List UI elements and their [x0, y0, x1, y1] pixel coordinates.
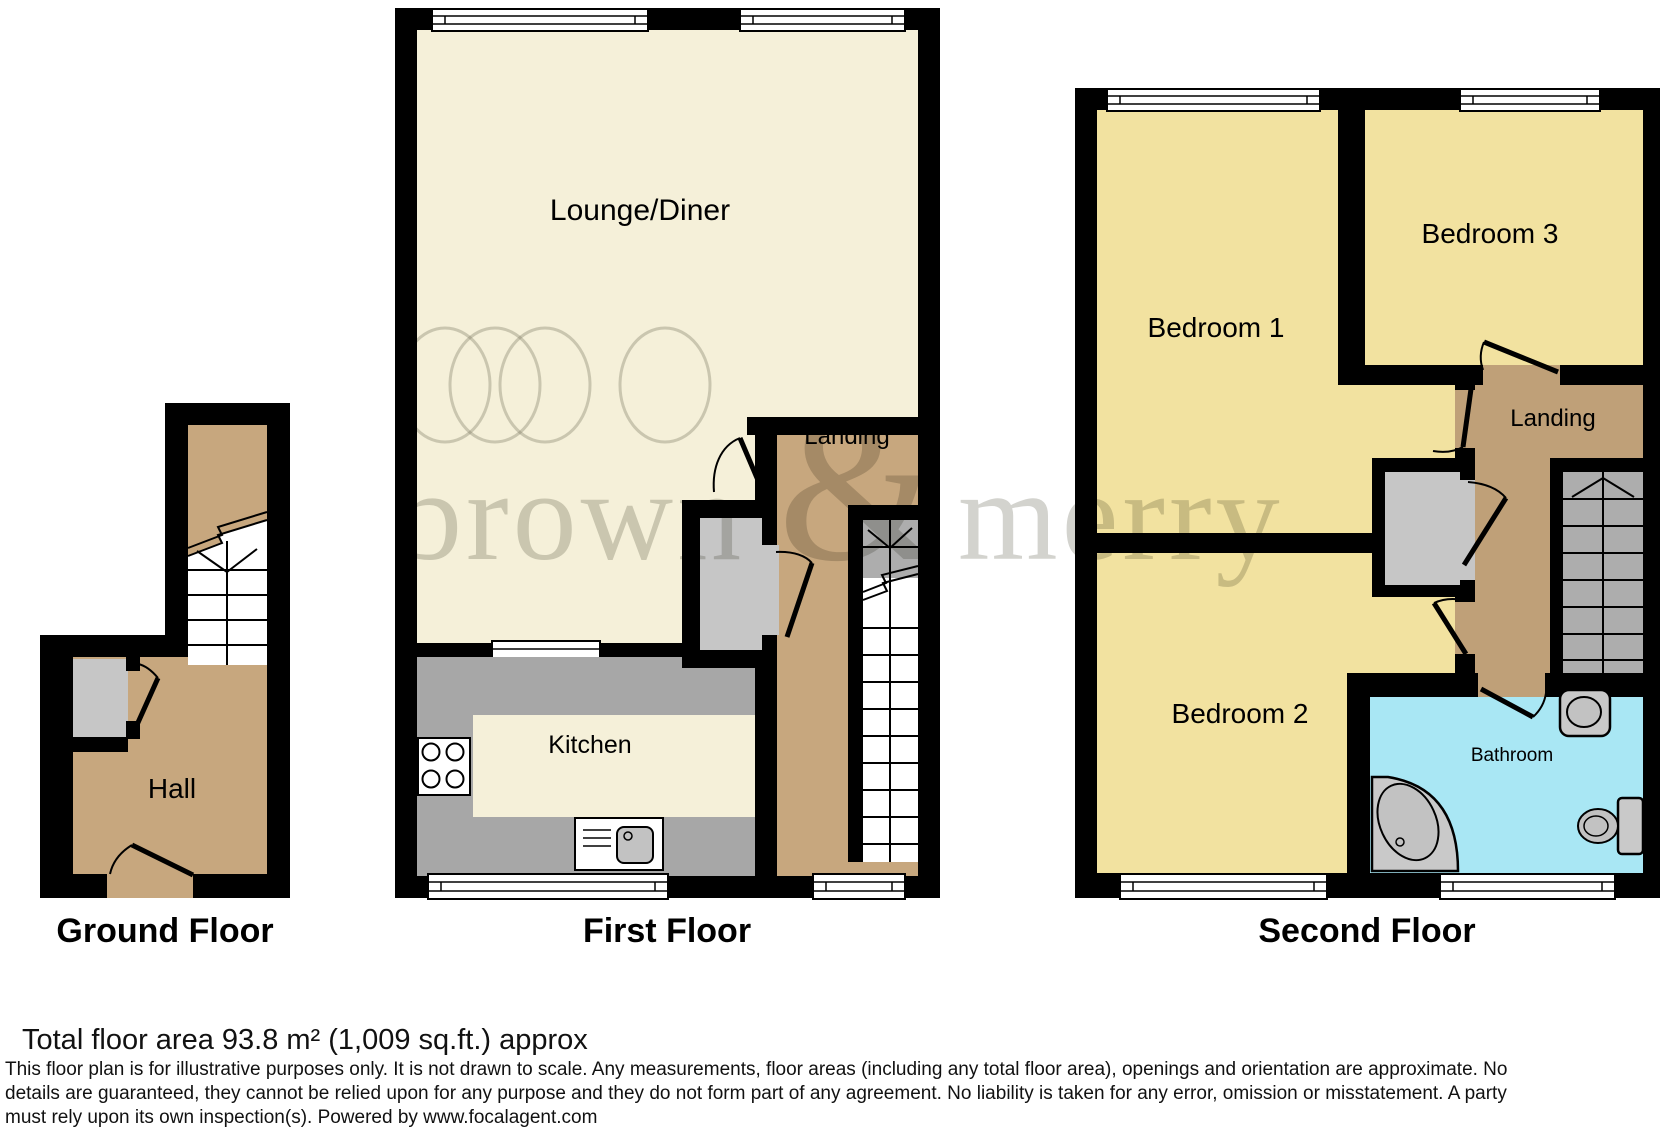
- first-floor-plan: Lounge/Diner Landing Kitchen: [395, 8, 940, 899]
- hob-icon: [418, 738, 470, 795]
- room-label-lounge-diner: Lounge/Diner: [550, 194, 730, 227]
- room-label-landing: Landing: [1510, 405, 1595, 432]
- cased-opening-icon: [492, 641, 600, 658]
- window-icon: [432, 9, 648, 31]
- room-label-bedroom-2: Bedroom 2: [1172, 698, 1309, 729]
- room-label-kitchen: Kitchen: [548, 731, 631, 759]
- bedroom2-bathroom-wall: [1347, 673, 1370, 873]
- window-icon: [813, 874, 905, 899]
- window-icon: [1107, 89, 1320, 111]
- window-icon: [1440, 874, 1615, 899]
- bedroom2-door-gap: [1455, 602, 1475, 654]
- cupboard: [682, 500, 779, 668]
- room-label-bathroom: Bathroom: [1471, 745, 1553, 766]
- window-icon: [428, 874, 668, 899]
- room-label-bedroom-1: Bedroom 1: [1148, 312, 1285, 343]
- room-label-landing: Landing: [804, 423, 889, 450]
- window-icon: [1120, 874, 1327, 899]
- basin-icon: [1560, 690, 1610, 736]
- disclaimer-line: must rely upon its own inspection(s). Po…: [5, 1106, 1507, 1130]
- room-label-bedroom-3: Bedroom 3: [1422, 218, 1559, 249]
- window-icon: [1460, 89, 1600, 111]
- bedroom1-bedroom2-wall: [1097, 533, 1372, 553]
- room-label-hall: Hall: [148, 773, 196, 804]
- cupboard: [1372, 458, 1475, 597]
- floor-plan-page: Hall: [0, 0, 1672, 1136]
- second-floor-plan: Bedroom 1 Bedroom 3 Bedroom 2 Landing Ba…: [1075, 88, 1660, 899]
- caption-ground-floor: Ground Floor: [56, 912, 273, 951]
- disclaimer-line: details are guaranteed, they cannot be r…: [5, 1082, 1507, 1106]
- disclaimer-text: This floor plan is for illustrative purp…: [5, 1058, 1507, 1130]
- stairs-icon: [1550, 458, 1643, 697]
- total-area-text: Total floor area 93.8 m² (1,009 sq.ft.) …: [22, 1024, 588, 1057]
- disclaimer-line: This floor plan is for illustrative purp…: [5, 1058, 1507, 1082]
- bedroom3-bottom-wall-right: [1560, 365, 1643, 385]
- floor-plans-drawing: Hall: [0, 0, 1672, 1136]
- bedroom1-bedroom3-wall: [1338, 110, 1365, 365]
- ground-floor-plan: Hall: [40, 403, 290, 898]
- window-icon: [740, 9, 905, 31]
- caption-first-floor: First Floor: [583, 912, 751, 951]
- sink-unit-icon: [575, 818, 663, 870]
- caption-second-floor: Second Floor: [1258, 912, 1475, 951]
